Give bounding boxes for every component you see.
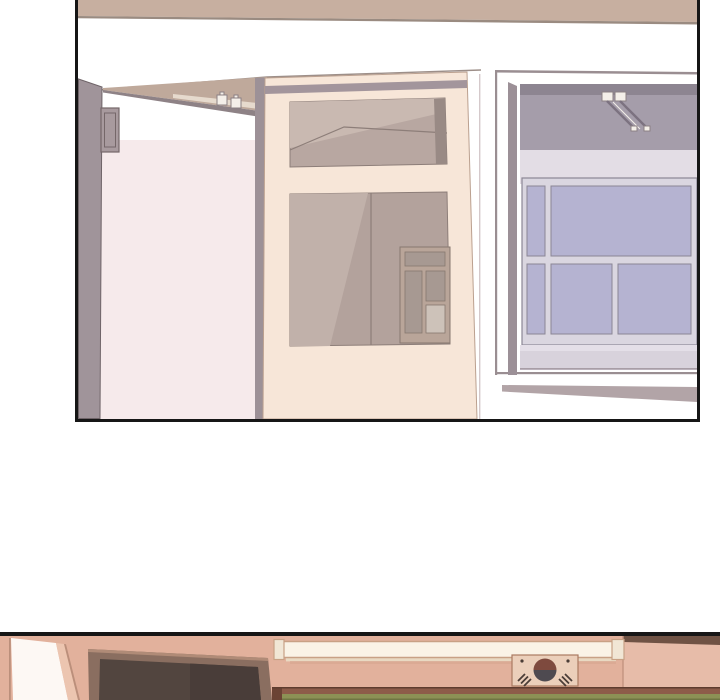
transom-shadow-strip [434,98,447,164]
light-end-cap-right [612,640,624,660]
jamb-face [79,79,103,419]
wall-edge-hairline [479,74,480,419]
door-track-header [103,77,267,118]
korean-flag-plaque [512,655,578,686]
pane-main-top [551,186,691,256]
roller-box-1 [602,92,613,101]
sash-window [522,178,697,345]
track-roller-1 [217,95,227,105]
interior-pane-top [405,252,445,266]
pane-main-bottom-left [551,264,612,334]
flag-dot-left [520,659,523,662]
interior-pane-left [405,271,422,333]
roller-box-2 [615,92,626,101]
classroom-scene [0,636,720,700]
panel-classroom [0,632,720,700]
door-lower-glass [290,192,450,346]
light-end-cap-left [274,640,284,660]
sill-bottom-line [520,368,697,370]
pane-left-bottom [527,264,545,334]
glazed-door [263,72,477,419]
board-frame-top [272,689,720,695]
pane-main-bottom-right [618,264,691,334]
hallway-scene [78,0,697,419]
interior-window [400,247,450,343]
opening-reveal-band [508,82,517,375]
sill-top-light [520,345,697,351]
ceiling-beam [78,0,697,25]
chalkboard [272,687,720,700]
door-left-line [9,638,11,700]
pink-wall [100,140,255,419]
rail-foot-2 [644,126,650,131]
panel-hallway [75,0,700,422]
track-roller-2 [231,98,241,108]
board-frame-left-edge [272,689,282,700]
window-sill [520,345,697,370]
tv-screen-shadow [190,664,261,700]
electrical-box [101,108,119,152]
transom-window [290,98,447,167]
interior-pane-bright [426,305,445,333]
board-top-line [272,687,720,689]
flag-dot-right [566,659,569,662]
opening-frame-bottom [495,372,697,374]
pane-left-top [527,186,545,256]
opening-frame-left [495,70,497,375]
opening-frame-top [495,70,697,75]
rail-foot-1 [631,126,637,131]
interior-pane-right [426,271,445,301]
comic-page [0,0,720,700]
wall-opening [495,70,697,402]
exterior-ledge [502,385,697,402]
